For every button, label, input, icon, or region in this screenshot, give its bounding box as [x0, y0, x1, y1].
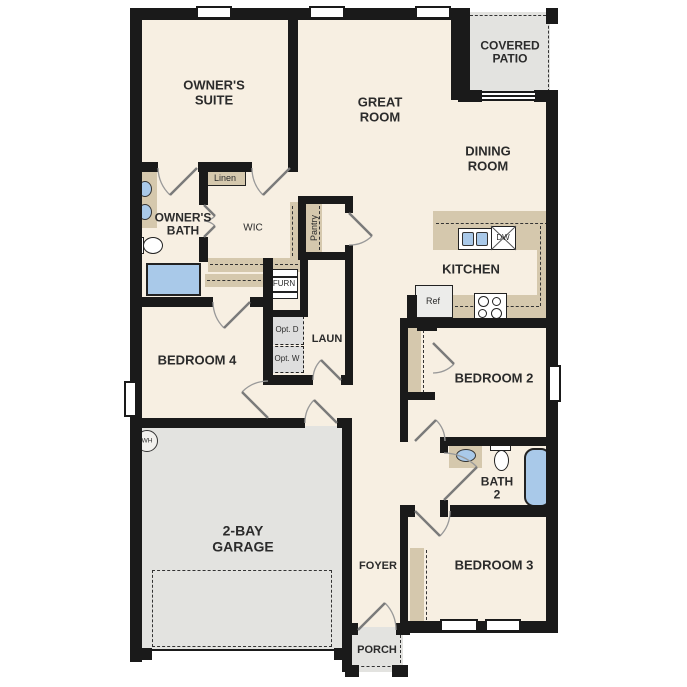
room-label-great-room: GREAT ROOM [345, 95, 415, 124]
room-label-bedroom-4: BEDROOM 4 [137, 354, 257, 369]
room-label-foyer: FOYER [348, 560, 408, 572]
room-label-owners-bath: OWNER'S BATH [147, 212, 219, 239]
room-label-wic: WIC [233, 222, 273, 233]
floor-plan: OWNER'S SUITE GREAT ROOM COVERED PATIO D… [0, 0, 687, 687]
room-label-bedroom-3: BEDROOM 3 [434, 559, 554, 574]
label-furnace: FURN [268, 280, 300, 288]
room-label-owners-suite: OWNER'S SUITE [164, 78, 264, 107]
label-opt-washer: Opt. W [274, 355, 300, 363]
room-label-pantry: Pantry [309, 208, 319, 248]
room-label-dining-room: DINING ROOM [453, 144, 523, 173]
room-label-covered-patio: COVERED PATIO [474, 40, 546, 67]
room-label-laundry: LAUN [302, 333, 352, 345]
room-label-garage: 2-BAY GARAGE [203, 523, 283, 554]
label-water-heater: WH [137, 437, 157, 444]
label-refrigerator: Ref [418, 296, 448, 306]
room-label-linen: Linen [205, 173, 245, 183]
room-label-bath-2: BATH 2 [477, 476, 517, 503]
label-opt-dryer: Opt. D [274, 326, 300, 334]
label-dishwasher: DW [491, 234, 515, 242]
room-label-bedroom-2: BEDROOM 2 [434, 372, 554, 387]
room-label-kitchen: KITCHEN [421, 263, 521, 278]
room-label-porch: PORCH [347, 644, 407, 656]
